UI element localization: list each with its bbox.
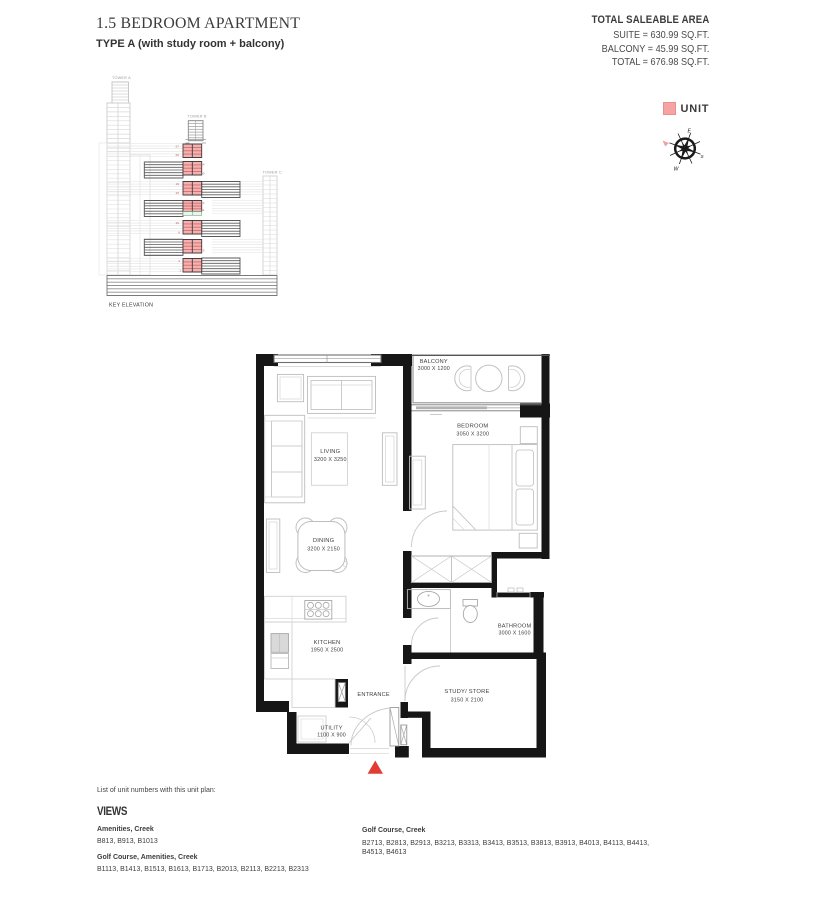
svg-text:S: S xyxy=(701,154,705,159)
svg-text:3150 X 2100: 3150 X 2100 xyxy=(451,697,484,703)
svg-text:TOWER C: TOWER C xyxy=(263,171,282,175)
svg-text:3200 X 2150: 3200 X 2150 xyxy=(307,546,340,552)
svg-text:BEDROOM: BEDROOM xyxy=(457,423,488,429)
svg-text:6: 6 xyxy=(178,231,180,235)
svg-text:19: 19 xyxy=(176,182,180,186)
svg-text:3050 X 3200: 3050 X 3200 xyxy=(456,432,489,438)
svg-text:1100 X 900: 1100 X 900 xyxy=(317,733,346,739)
svg-text:1950 X 2500: 1950 X 2500 xyxy=(311,648,344,654)
svg-text:3000 X 1600: 3000 X 1600 xyxy=(498,631,530,637)
svg-text:3000 X 1200: 3000 X 1200 xyxy=(418,366,450,372)
svg-text:KITCHEN: KITCHEN xyxy=(314,640,341,646)
svg-text:STUDY/ STORE: STUDY/ STORE xyxy=(444,689,489,695)
svg-text:UTILITY: UTILITY xyxy=(320,726,342,732)
svg-text:26: 26 xyxy=(176,153,180,157)
svg-text:14: 14 xyxy=(201,201,205,205)
svg-text:15: 15 xyxy=(176,191,180,195)
svg-text:5: 5 xyxy=(203,249,205,253)
svg-text:BALCONY: BALCONY xyxy=(420,359,448,365)
svg-text:E: E xyxy=(688,129,692,135)
svg-text:BATHROOM: BATHROOM xyxy=(498,624,532,630)
svg-text:11: 11 xyxy=(201,208,204,212)
svg-text:LIVING: LIVING xyxy=(320,449,340,455)
svg-text:4: 4 xyxy=(178,259,180,263)
svg-text:20: 20 xyxy=(201,172,205,176)
svg-text:DINING: DINING xyxy=(313,538,335,544)
svg-text:KEY ELEVATION: KEY ELEVATION xyxy=(109,303,153,309)
svg-text:1: 1 xyxy=(179,269,181,273)
svg-text:TOWER B: TOWER B xyxy=(188,115,207,119)
svg-text:24: 24 xyxy=(201,163,205,167)
svg-text:W: W xyxy=(674,167,680,173)
svg-text:27: 27 xyxy=(176,145,180,149)
svg-text:3200 X 3250: 3200 X 3250 xyxy=(314,457,347,463)
svg-text:10: 10 xyxy=(176,221,180,225)
svg-text:ENTRANCE: ENTRANCE xyxy=(357,692,389,698)
svg-text:TOWER A: TOWER A xyxy=(112,76,131,80)
